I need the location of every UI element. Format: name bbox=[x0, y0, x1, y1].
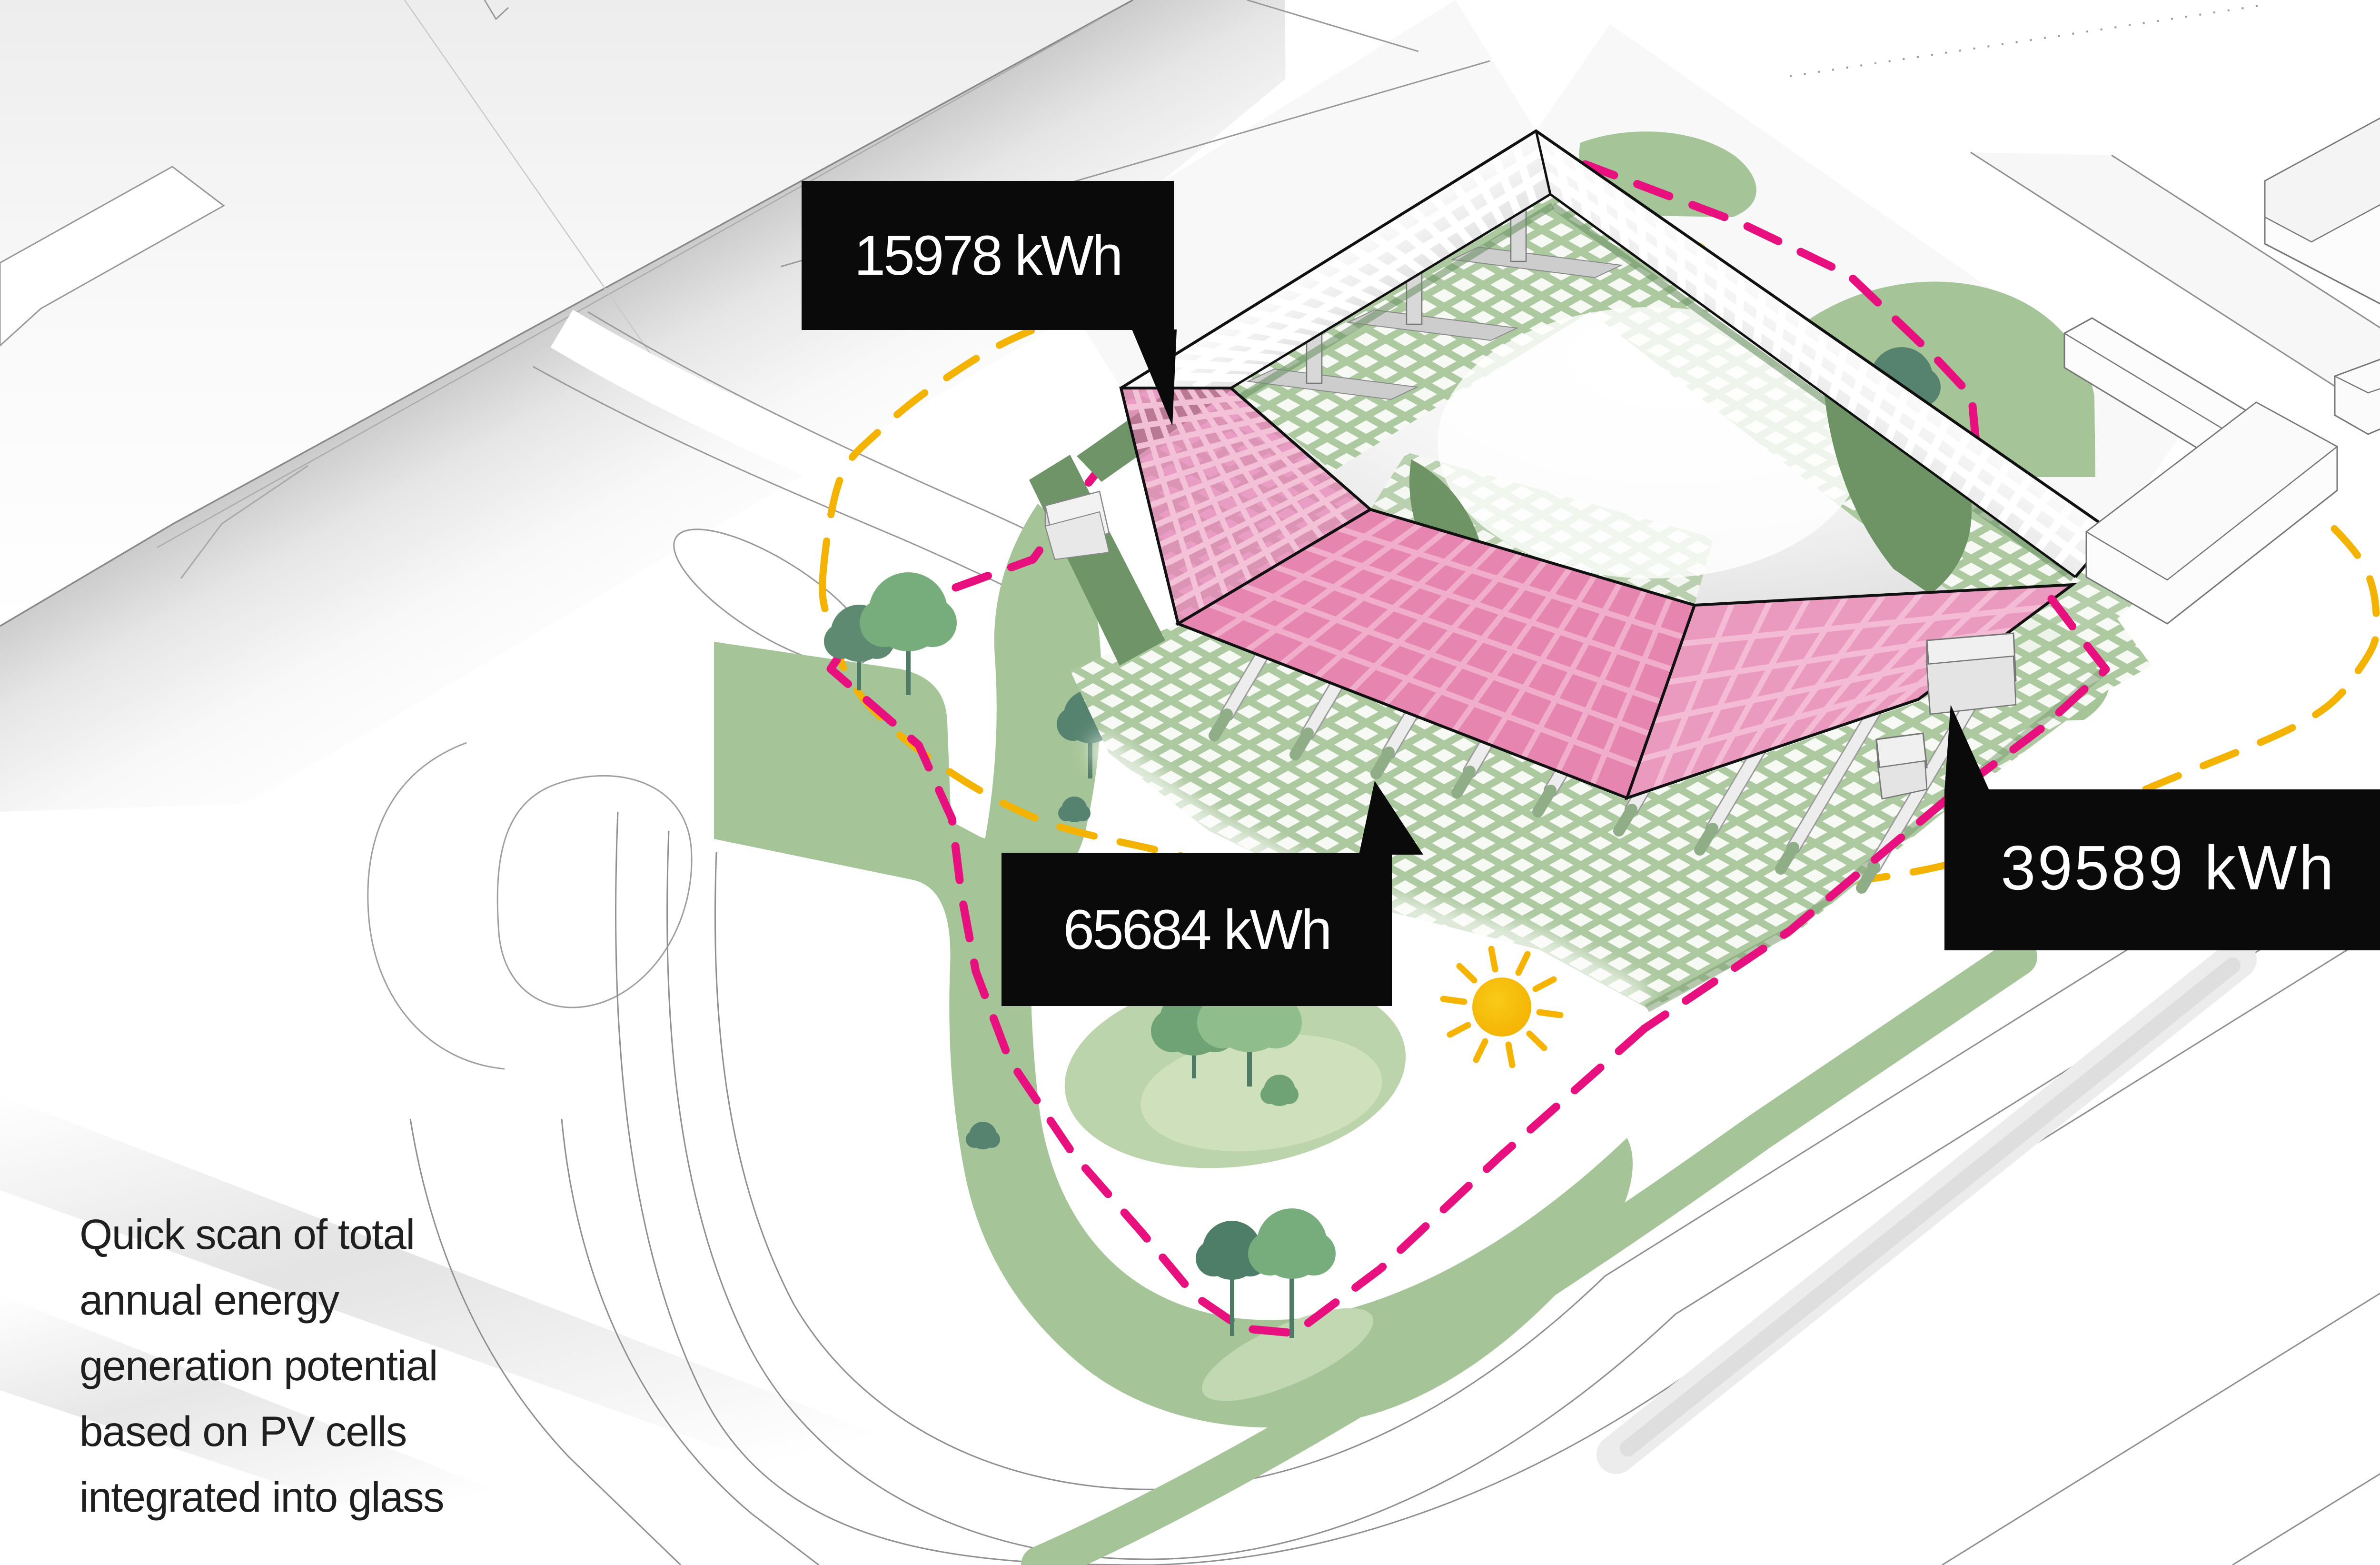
svg-text:Quick scan of total: Quick scan of total bbox=[79, 1210, 415, 1258]
svg-text:annual energy: annual energy bbox=[79, 1276, 340, 1324]
svg-text:generation potential: generation potential bbox=[79, 1342, 437, 1389]
svg-text:39589 kWh: 39589 kWh bbox=[2001, 833, 2336, 903]
svg-text:based on PV cells: based on PV cells bbox=[79, 1407, 407, 1455]
svg-text:integrated into glass: integrated into glass bbox=[79, 1473, 444, 1521]
svg-text:65684 kWh: 65684 kWh bbox=[1063, 898, 1330, 961]
svg-text:15978 kWh: 15978 kWh bbox=[854, 224, 1121, 287]
